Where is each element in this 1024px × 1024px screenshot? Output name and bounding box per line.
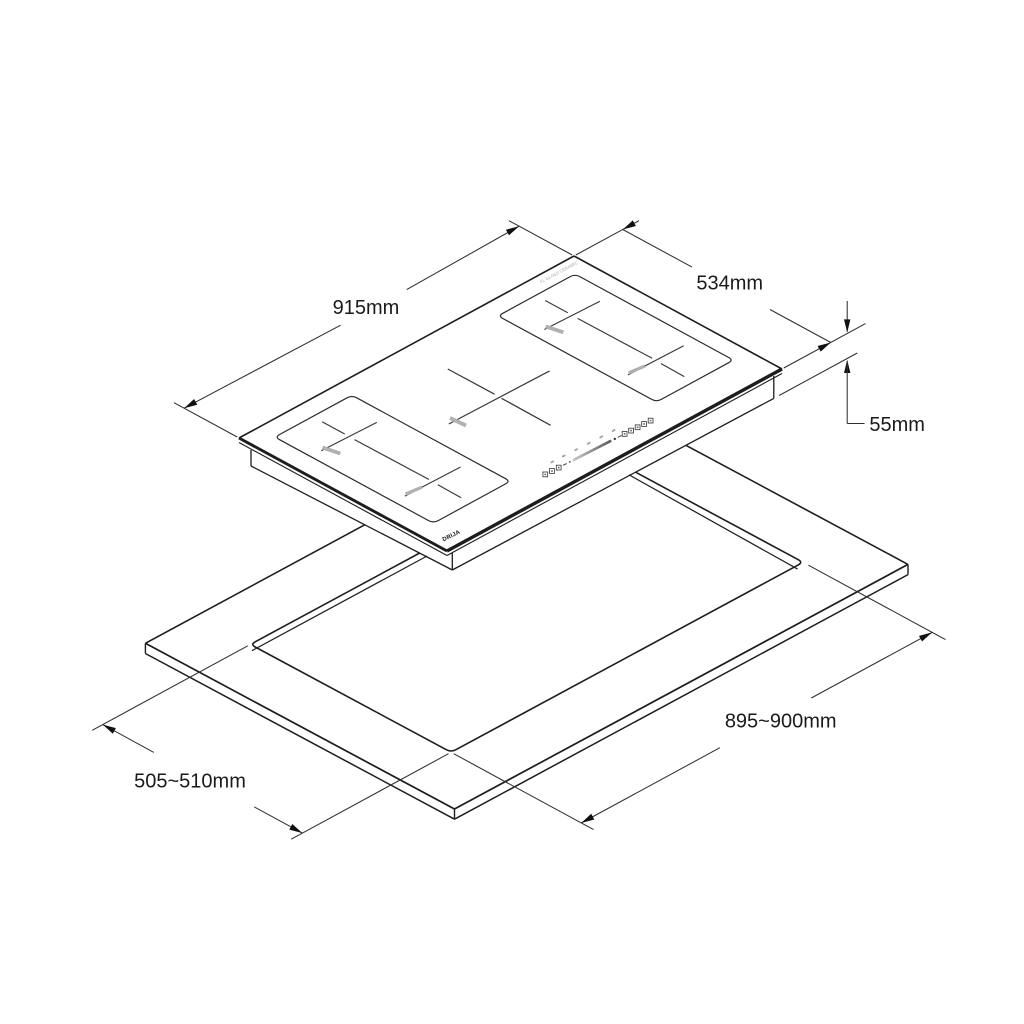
svg-text:534mm: 534mm <box>696 273 763 295</box>
svg-text:915mm: 915mm <box>333 297 400 319</box>
svg-text:55mm: 55mm <box>869 414 925 436</box>
svg-text:505~510mm: 505~510mm <box>134 771 246 793</box>
svg-text:895~900mm: 895~900mm <box>725 710 837 732</box>
